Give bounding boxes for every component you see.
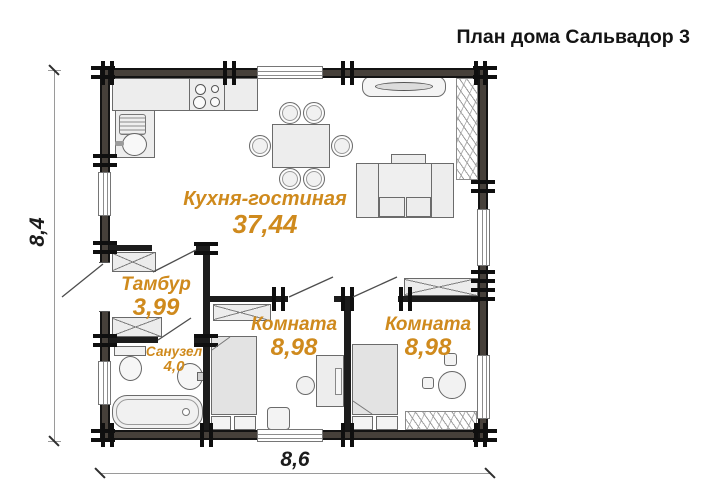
log-joint bbox=[341, 287, 354, 311]
hall-area: 3,99 bbox=[108, 295, 204, 322]
dining-chair bbox=[303, 168, 325, 190]
stool bbox=[267, 407, 290, 430]
nightstand bbox=[352, 416, 373, 430]
stove-burner bbox=[195, 84, 206, 95]
hall-wardrobe bbox=[112, 252, 156, 272]
desk-drawer bbox=[335, 368, 342, 395]
log-joint bbox=[341, 61, 354, 85]
log-joint bbox=[93, 154, 117, 167]
bathroom-name: Санузел bbox=[138, 344, 210, 359]
dining-chair bbox=[279, 102, 301, 124]
nightstand bbox=[234, 416, 256, 430]
bathroom-area: 4,0 bbox=[138, 359, 210, 376]
washing-machine bbox=[119, 114, 146, 135]
nightstand bbox=[211, 416, 231, 430]
hall-name: Тамбур bbox=[108, 274, 204, 295]
bedroom2-name: Комната bbox=[362, 314, 494, 335]
dining-chair bbox=[279, 168, 301, 190]
closet-hatched bbox=[456, 78, 478, 180]
living-room-name: Кухня-гостиная bbox=[150, 188, 380, 210]
stool bbox=[422, 377, 434, 389]
dining-table bbox=[272, 124, 330, 168]
stove-burner bbox=[211, 85, 219, 93]
floor-plan-canvas: План дома Сальвадор 3 8,4 8,6 bbox=[0, 0, 713, 502]
nightstand bbox=[376, 416, 398, 430]
width-dimension-label: 8,6 bbox=[265, 448, 325, 472]
dining-chair bbox=[331, 135, 353, 157]
window-north bbox=[257, 66, 323, 79]
log-joint bbox=[471, 288, 495, 301]
bedroom1-label: Комната 8,98 bbox=[228, 314, 360, 362]
faucet bbox=[115, 141, 124, 146]
window-east-living bbox=[477, 209, 490, 266]
bedroom2-area: 8,98 bbox=[362, 335, 494, 362]
stove-burner bbox=[193, 96, 206, 109]
entry-door-swing bbox=[62, 264, 103, 297]
kitchen-counter bbox=[112, 78, 258, 111]
tv bbox=[375, 82, 433, 91]
log-joint bbox=[194, 242, 218, 255]
round-table bbox=[438, 371, 466, 399]
wardrobe bbox=[404, 278, 478, 296]
dimension-line-vertical bbox=[54, 70, 55, 442]
log-joint bbox=[91, 429, 115, 442]
dining-chair bbox=[303, 102, 325, 124]
log-joint bbox=[223, 61, 236, 85]
hall-kitchen-door-swing bbox=[153, 250, 196, 272]
window-east-bedroom bbox=[477, 355, 490, 419]
stove-burner bbox=[210, 97, 220, 107]
bathtub-drain bbox=[182, 408, 190, 416]
plan-title: План дома Сальвадор 3 bbox=[457, 26, 691, 49]
bedroom1-door-swing bbox=[289, 277, 333, 297]
log-joint bbox=[91, 66, 115, 79]
log-joint bbox=[399, 287, 412, 311]
dimension-line-horizontal bbox=[100, 473, 490, 474]
log-joint bbox=[473, 66, 497, 79]
log-joint bbox=[93, 241, 117, 254]
sofa-cushion bbox=[406, 197, 431, 217]
living-room-area: 37,44 bbox=[150, 210, 380, 239]
dining-chair bbox=[249, 135, 271, 157]
bedroom2-door-swing bbox=[353, 277, 397, 297]
log-joint bbox=[473, 429, 497, 442]
log-joint bbox=[341, 423, 354, 447]
height-dimension-label: 8,4 bbox=[26, 210, 54, 254]
living-room-label: Кухня-гостиная 37,44 bbox=[150, 188, 380, 240]
hall-label: Тамбур 3,99 bbox=[108, 274, 204, 322]
bedroom1-area: 8,98 bbox=[228, 335, 360, 362]
log-joint bbox=[200, 423, 213, 447]
bedroom2-label: Комната 8,98 bbox=[362, 314, 494, 362]
kitchen-sink bbox=[122, 133, 147, 156]
wardrobe-hatched bbox=[405, 411, 477, 430]
log-joint bbox=[272, 287, 285, 311]
log-joint bbox=[93, 334, 117, 347]
desk-chair bbox=[296, 376, 315, 395]
bathroom-label: Санузел 4,0 bbox=[138, 344, 210, 376]
log-joint bbox=[471, 180, 495, 193]
window-south bbox=[257, 429, 323, 442]
sofa-cushion bbox=[379, 197, 405, 217]
window-west-kitchen bbox=[98, 172, 111, 216]
window-west-bathroom bbox=[98, 361, 111, 405]
sofa-armrest bbox=[431, 163, 454, 218]
bedroom1-name: Комната bbox=[228, 314, 360, 335]
log-joint bbox=[471, 270, 495, 283]
